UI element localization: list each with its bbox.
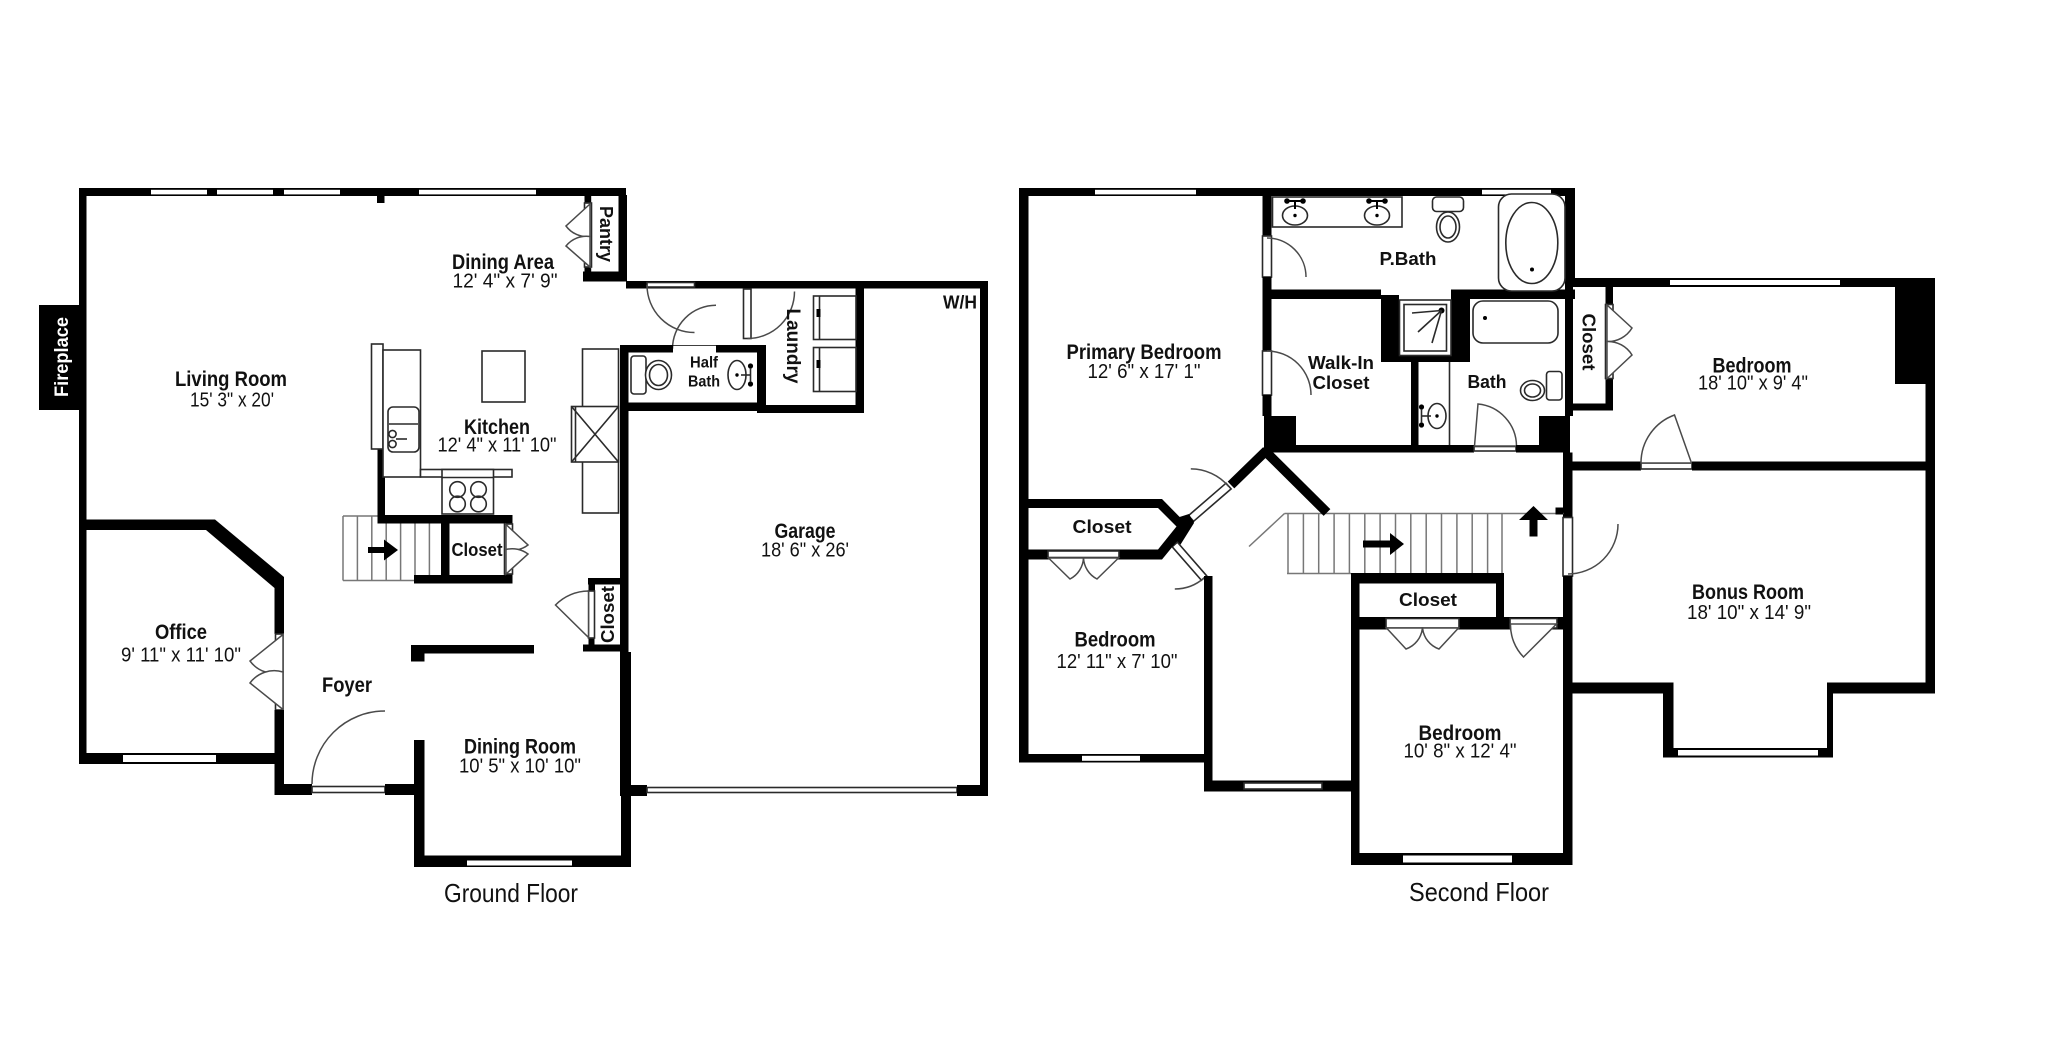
svg-text:Closet: Closet bbox=[1073, 517, 1132, 537]
svg-text:10' 8" x 12' 4": 10' 8" x 12' 4" bbox=[1404, 740, 1517, 763]
svg-text:15' 3" x 20': 15' 3" x 20' bbox=[190, 389, 274, 412]
svg-text:Second Floor: Second Floor bbox=[1409, 877, 1549, 907]
svg-text:Bedroom: Bedroom bbox=[1075, 628, 1156, 652]
svg-text:9' 11" x 11' 10": 9' 11" x 11' 10" bbox=[121, 644, 241, 667]
svg-text:Foyer: Foyer bbox=[322, 673, 373, 697]
svg-text:Fireplace: Fireplace bbox=[51, 317, 73, 397]
svg-text:Closet: Closet bbox=[1313, 373, 1370, 393]
svg-text:Bath: Bath bbox=[1468, 372, 1507, 392]
svg-text:18' 10" x 9' 4": 18' 10" x 9' 4" bbox=[1698, 372, 1808, 395]
svg-text:Living Room: Living Room bbox=[175, 367, 287, 391]
svg-text:12' 11" x 7' 10": 12' 11" x 7' 10" bbox=[1057, 650, 1178, 673]
svg-text:Closet: Closet bbox=[452, 540, 503, 560]
svg-text:10' 5" x 10' 10": 10' 5" x 10' 10" bbox=[459, 755, 581, 778]
svg-text:18' 10" x 14' 9": 18' 10" x 14' 9" bbox=[1687, 601, 1811, 624]
svg-text:P.Bath: P.Bath bbox=[1380, 249, 1437, 269]
svg-text:18' 6" x 26': 18' 6" x 26' bbox=[761, 539, 849, 562]
svg-text:Ground Floor: Ground Floor bbox=[444, 878, 578, 908]
svg-text:Bath: Bath bbox=[688, 374, 720, 391]
svg-text:Office: Office bbox=[155, 620, 207, 644]
svg-text:Closet: Closet bbox=[597, 586, 618, 643]
svg-text:Closet: Closet bbox=[1579, 314, 1600, 371]
svg-text:Laundry: Laundry bbox=[782, 309, 804, 384]
svg-text:Walk-In: Walk-In bbox=[1308, 353, 1374, 373]
svg-text:W/H: W/H bbox=[943, 293, 977, 313]
svg-text:12' 4" x 11' 10": 12' 4" x 11' 10" bbox=[438, 434, 557, 457]
svg-text:12' 4" x 7' 9": 12' 4" x 7' 9" bbox=[453, 270, 558, 293]
svg-text:12' 6" x 17' 1": 12' 6" x 17' 1" bbox=[1088, 360, 1201, 383]
svg-text:Pantry: Pantry bbox=[596, 206, 616, 262]
svg-text:Closet: Closet bbox=[1399, 590, 1457, 610]
svg-text:Half: Half bbox=[690, 355, 719, 372]
